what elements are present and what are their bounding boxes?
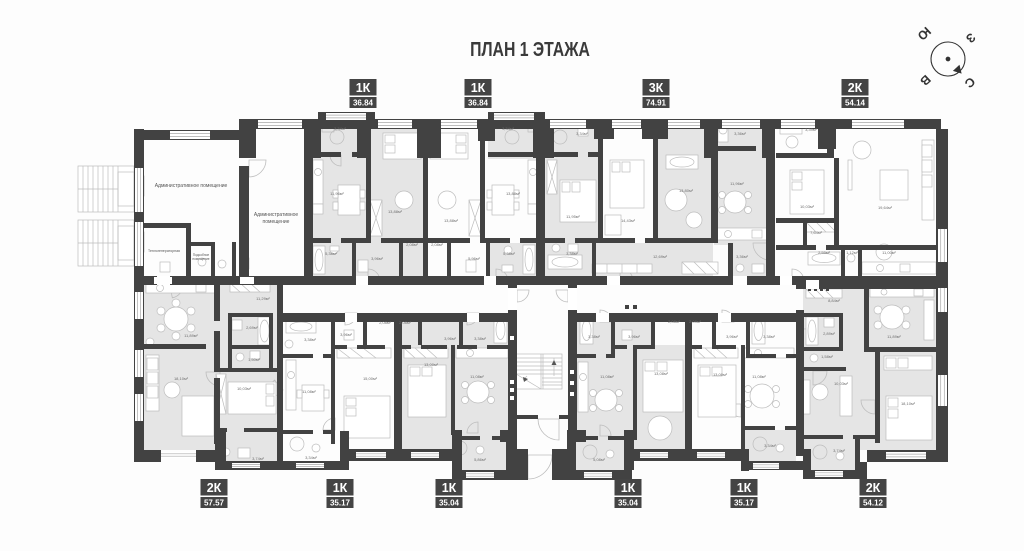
svg-text:13,88м²: 13,88м²	[444, 218, 459, 223]
svg-text:15,00м²: 15,00м²	[363, 376, 378, 381]
svg-text:2,55м²: 2,55м²	[818, 250, 831, 255]
svg-text:3,34м²: 3,34м²	[502, 126, 515, 131]
svg-text:3,96м²: 3,96м²	[340, 332, 353, 337]
svg-text:3,38м²: 3,38м²	[474, 336, 487, 341]
svg-text:3,38м²: 3,38м²	[763, 334, 776, 339]
svg-text:11,89м²: 11,89м²	[184, 333, 198, 338]
svg-text:3,34м²: 3,34м²	[334, 126, 347, 131]
svg-text:18,10м²: 18,10м²	[174, 376, 189, 381]
svg-text:11,96м²: 11,96м²	[330, 191, 344, 196]
svg-text:2К: 2К	[207, 481, 222, 495]
svg-text:2К: 2К	[866, 481, 881, 495]
svg-text:13,00м²: 13,00м²	[713, 372, 728, 377]
svg-text:5,96м²: 5,96м²	[468, 256, 481, 261]
svg-text:Административное: Административное	[254, 212, 299, 218]
svg-text:13,88м²: 13,88м²	[388, 209, 403, 214]
svg-text:помещение: помещение	[263, 219, 290, 225]
svg-text:1К: 1К	[737, 481, 752, 495]
svg-text:1,58м²: 1,58м²	[821, 354, 834, 359]
svg-text:3,96м²: 3,96м²	[628, 334, 641, 339]
svg-text:1К: 1К	[356, 81, 371, 95]
svg-text:54.14: 54.14	[845, 99, 866, 108]
svg-text:Теплогенераторная: Теплогенераторная	[148, 249, 180, 253]
svg-text:11,08м²: 11,08м²	[470, 374, 484, 379]
svg-text:1,12м²: 1,12м²	[846, 250, 859, 255]
svg-text:8,84м²: 8,84м²	[828, 298, 841, 303]
svg-text:74.91: 74.91	[646, 99, 667, 108]
svg-text:14,43м²: 14,43м²	[621, 218, 636, 223]
svg-text:13,00м²: 13,00м²	[424, 362, 439, 367]
svg-text:13,80м²: 13,80м²	[679, 188, 694, 193]
svg-text:1К: 1К	[471, 81, 486, 95]
svg-text:36.84: 36.84	[468, 99, 489, 108]
svg-text:3,39м²: 3,39м²	[805, 127, 818, 132]
svg-text:11,29м²: 11,29м²	[256, 296, 270, 301]
svg-text:2,09м²: 2,09м²	[689, 319, 702, 324]
svg-text:35.17: 35.17	[734, 499, 755, 508]
svg-text:3,96м²: 3,96м²	[726, 334, 739, 339]
svg-text:13,08м²: 13,08м²	[654, 371, 669, 376]
svg-text:3,96м²: 3,96м²	[371, 256, 384, 261]
svg-text:3,38м²: 3,38м²	[588, 334, 601, 339]
svg-text:3,38м²: 3,38м²	[304, 337, 317, 342]
svg-text:5,86м²: 5,86м²	[474, 457, 487, 462]
svg-text:2,08м²: 2,08м²	[406, 242, 419, 247]
svg-text:3,34м²: 3,34м²	[305, 455, 318, 460]
svg-text:5,38м²: 5,38м²	[325, 251, 338, 256]
svg-text:3,36м²: 3,36м²	[734, 131, 747, 136]
svg-text:1К: 1К	[442, 481, 457, 495]
svg-text:Административное помещение: Административное помещение	[155, 183, 228, 189]
svg-text:11,08м²: 11,08м²	[752, 374, 766, 379]
svg-text:1К: 1К	[333, 481, 348, 495]
svg-text:3,36м²: 3,36м²	[736, 254, 749, 259]
svg-text:помещение: помещение	[192, 257, 209, 261]
svg-text:1,50м²: 1,50м²	[248, 357, 261, 362]
svg-text:ПЛАН 1 ЭТАЖА: ПЛАН 1 ЭТАЖА	[470, 38, 590, 60]
svg-text:3,74м²: 3,74м²	[252, 456, 265, 461]
svg-text:13,88м²: 13,88м²	[506, 191, 521, 196]
svg-text:10,03м²: 10,03м²	[834, 381, 849, 386]
svg-text:36.84: 36.84	[353, 99, 374, 108]
svg-text:2,08м²: 2,08м²	[399, 320, 412, 325]
svg-text:10,03м²: 10,03м²	[800, 204, 815, 209]
svg-text:11,89м²: 11,89м²	[887, 334, 901, 339]
svg-text:3,74м²: 3,74м²	[833, 448, 846, 453]
svg-text:2,08м²: 2,08м²	[379, 320, 392, 325]
svg-text:3К: 3К	[649, 81, 664, 95]
svg-text:11,00м²: 11,00м²	[882, 250, 896, 255]
svg-text:57.57: 57.57	[204, 499, 225, 508]
svg-text:3,38м²: 3,38м²	[566, 251, 579, 256]
svg-text:7,64м²: 7,64м²	[810, 230, 823, 235]
svg-text:35.17: 35.17	[330, 499, 351, 508]
svg-text:5,08м²: 5,08м²	[593, 457, 606, 462]
svg-text:11,96м²: 11,96м²	[730, 181, 744, 186]
svg-text:18,10м²: 18,10м²	[901, 401, 916, 406]
svg-text:11,08м²: 11,08м²	[600, 374, 614, 379]
svg-text:11,95м²: 11,95м²	[566, 214, 580, 219]
svg-text:2,69м²: 2,69м²	[246, 325, 259, 330]
svg-text:35.04: 35.04	[618, 499, 639, 508]
svg-text:2,89м²: 2,89м²	[823, 331, 836, 336]
svg-text:11,08м²: 11,08м²	[302, 389, 316, 394]
svg-text:3,96м²: 3,96м²	[444, 336, 457, 341]
svg-text:2К: 2К	[848, 81, 863, 95]
svg-text:35.04: 35.04	[439, 499, 460, 508]
svg-text:12,69м²: 12,69м²	[653, 254, 668, 259]
svg-text:54.12: 54.12	[863, 499, 884, 508]
svg-text:1К: 1К	[621, 481, 636, 495]
svg-text:19,64м²: 19,64м²	[878, 205, 893, 210]
svg-text:3,34м²: 3,34м²	[764, 443, 777, 448]
svg-text:2,08м²: 2,08м²	[431, 242, 444, 247]
svg-text:5,38м²: 5,38м²	[503, 251, 516, 256]
svg-text:3,34м²: 3,34м²	[576, 131, 589, 136]
svg-text:2,08м²: 2,08м²	[668, 319, 681, 324]
svg-text:10,03м²: 10,03м²	[237, 386, 252, 391]
